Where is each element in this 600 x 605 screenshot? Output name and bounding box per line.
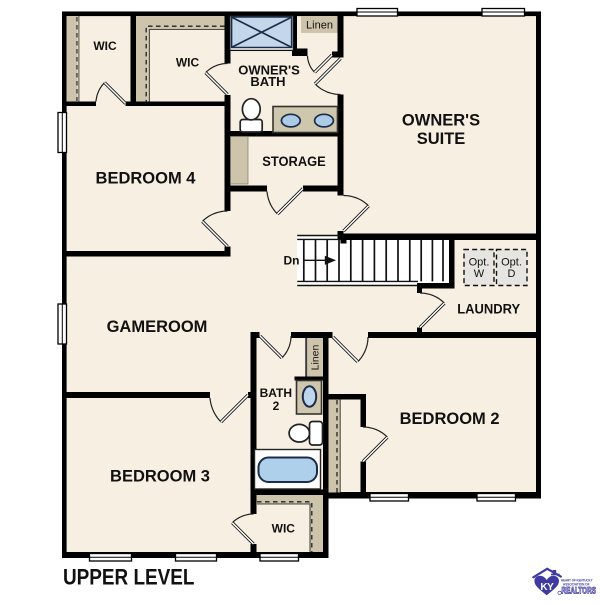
svg-text:BEDROOM 2: BEDROOM 2 xyxy=(400,410,500,428)
svg-text:W: W xyxy=(474,268,485,280)
svg-text:WIC: WIC xyxy=(272,522,296,536)
svg-text:KY: KY xyxy=(540,582,554,593)
svg-text:REALTORS: REALTORS xyxy=(562,585,597,596)
svg-text:Dn: Dn xyxy=(284,254,300,268)
svg-text:GAMEROOM: GAMEROOM xyxy=(107,318,208,336)
svg-text:WIC: WIC xyxy=(176,55,200,69)
svg-text:OWNER'S: OWNER'S xyxy=(402,112,480,130)
svg-text:Linen: Linen xyxy=(306,20,333,32)
svg-text:Opt.: Opt. xyxy=(469,256,490,268)
svg-text:BATH: BATH xyxy=(260,386,292,400)
svg-text:LAUNDRY: LAUNDRY xyxy=(457,302,520,317)
svg-text:BEDROOM 3: BEDROOM 3 xyxy=(110,468,210,486)
svg-text:Linen: Linen xyxy=(310,345,322,371)
svg-text:Opt.: Opt. xyxy=(501,256,522,268)
svg-text:UPPER LEVEL: UPPER LEVEL xyxy=(63,565,195,590)
svg-text:SUITE: SUITE xyxy=(417,130,466,148)
svg-text:2: 2 xyxy=(273,399,280,413)
svg-text:BATH: BATH xyxy=(250,74,285,89)
svg-text:WIC: WIC xyxy=(93,39,117,53)
svg-text:STORAGE: STORAGE xyxy=(262,154,326,169)
svg-text:D: D xyxy=(508,268,516,280)
svg-text:BEDROOM 4: BEDROOM 4 xyxy=(96,170,197,188)
